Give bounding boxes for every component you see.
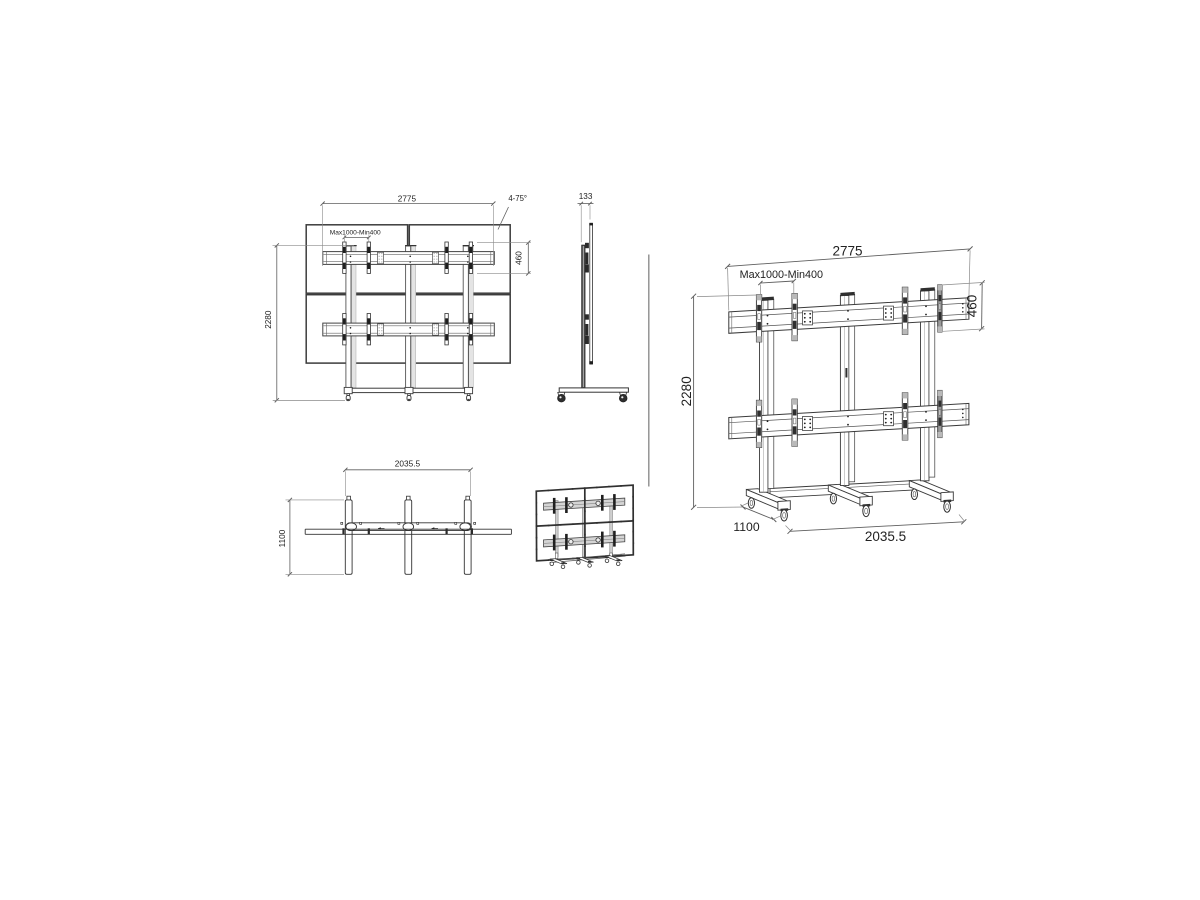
svg-text:Max1000-Min400: Max1000-Min400	[330, 230, 381, 237]
svg-text:2775: 2775	[398, 194, 417, 203]
svg-text:133: 133	[579, 192, 593, 201]
svg-text:2280: 2280	[679, 376, 694, 406]
svg-text:2775: 2775	[832, 244, 862, 259]
svg-text:1100: 1100	[733, 520, 759, 534]
svg-text:4-75°: 4-75°	[508, 194, 527, 203]
svg-text:2280: 2280	[264, 310, 273, 329]
svg-text:1100: 1100	[278, 529, 287, 547]
svg-text:460: 460	[964, 295, 979, 318]
svg-text:2035.5: 2035.5	[865, 529, 906, 544]
svg-text:2035.5: 2035.5	[395, 459, 421, 469]
svg-text:460: 460	[515, 251, 524, 265]
svg-text:Max1000-Min400: Max1000-Min400	[740, 269, 823, 281]
